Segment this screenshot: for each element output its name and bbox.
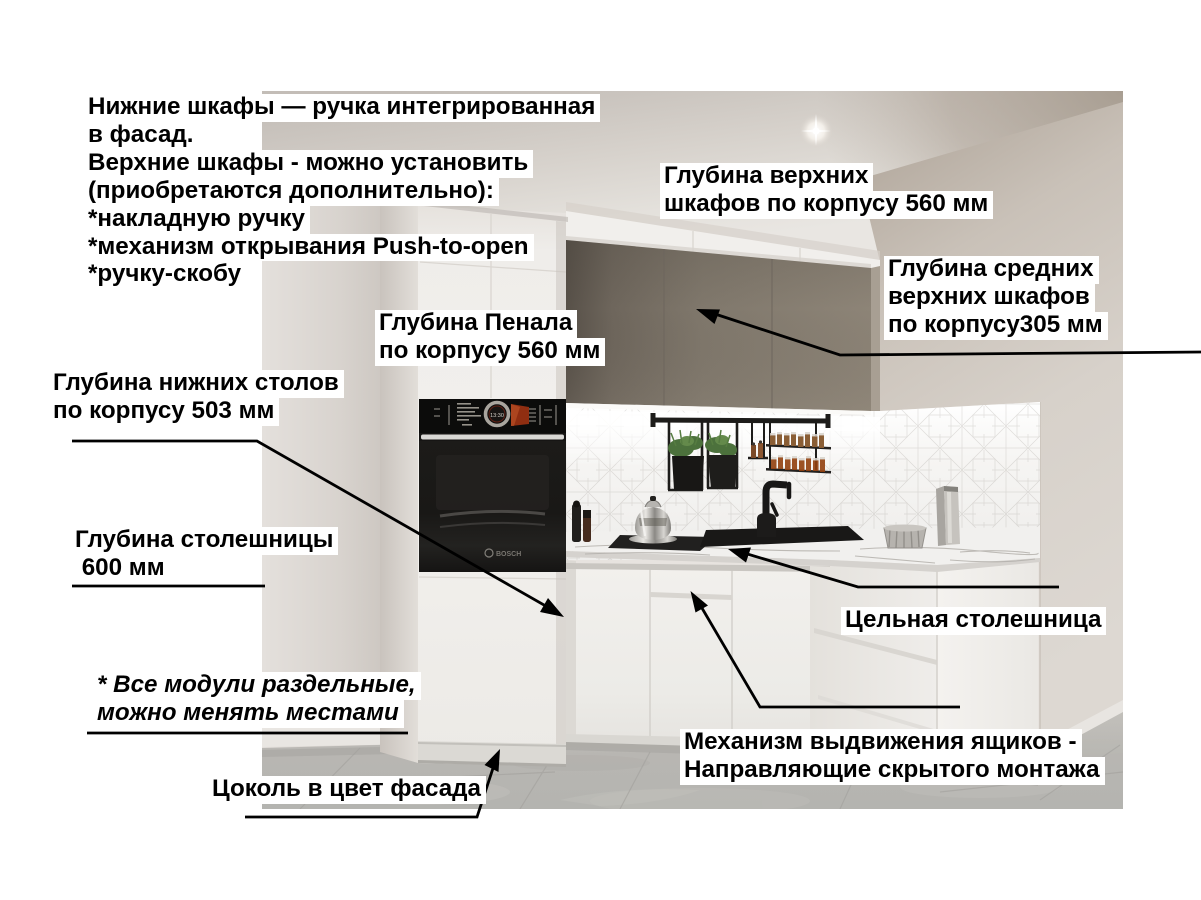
svg-text:BOSCH: BOSCH — [496, 551, 521, 558]
svg-text:13:30: 13:30 — [490, 413, 504, 419]
